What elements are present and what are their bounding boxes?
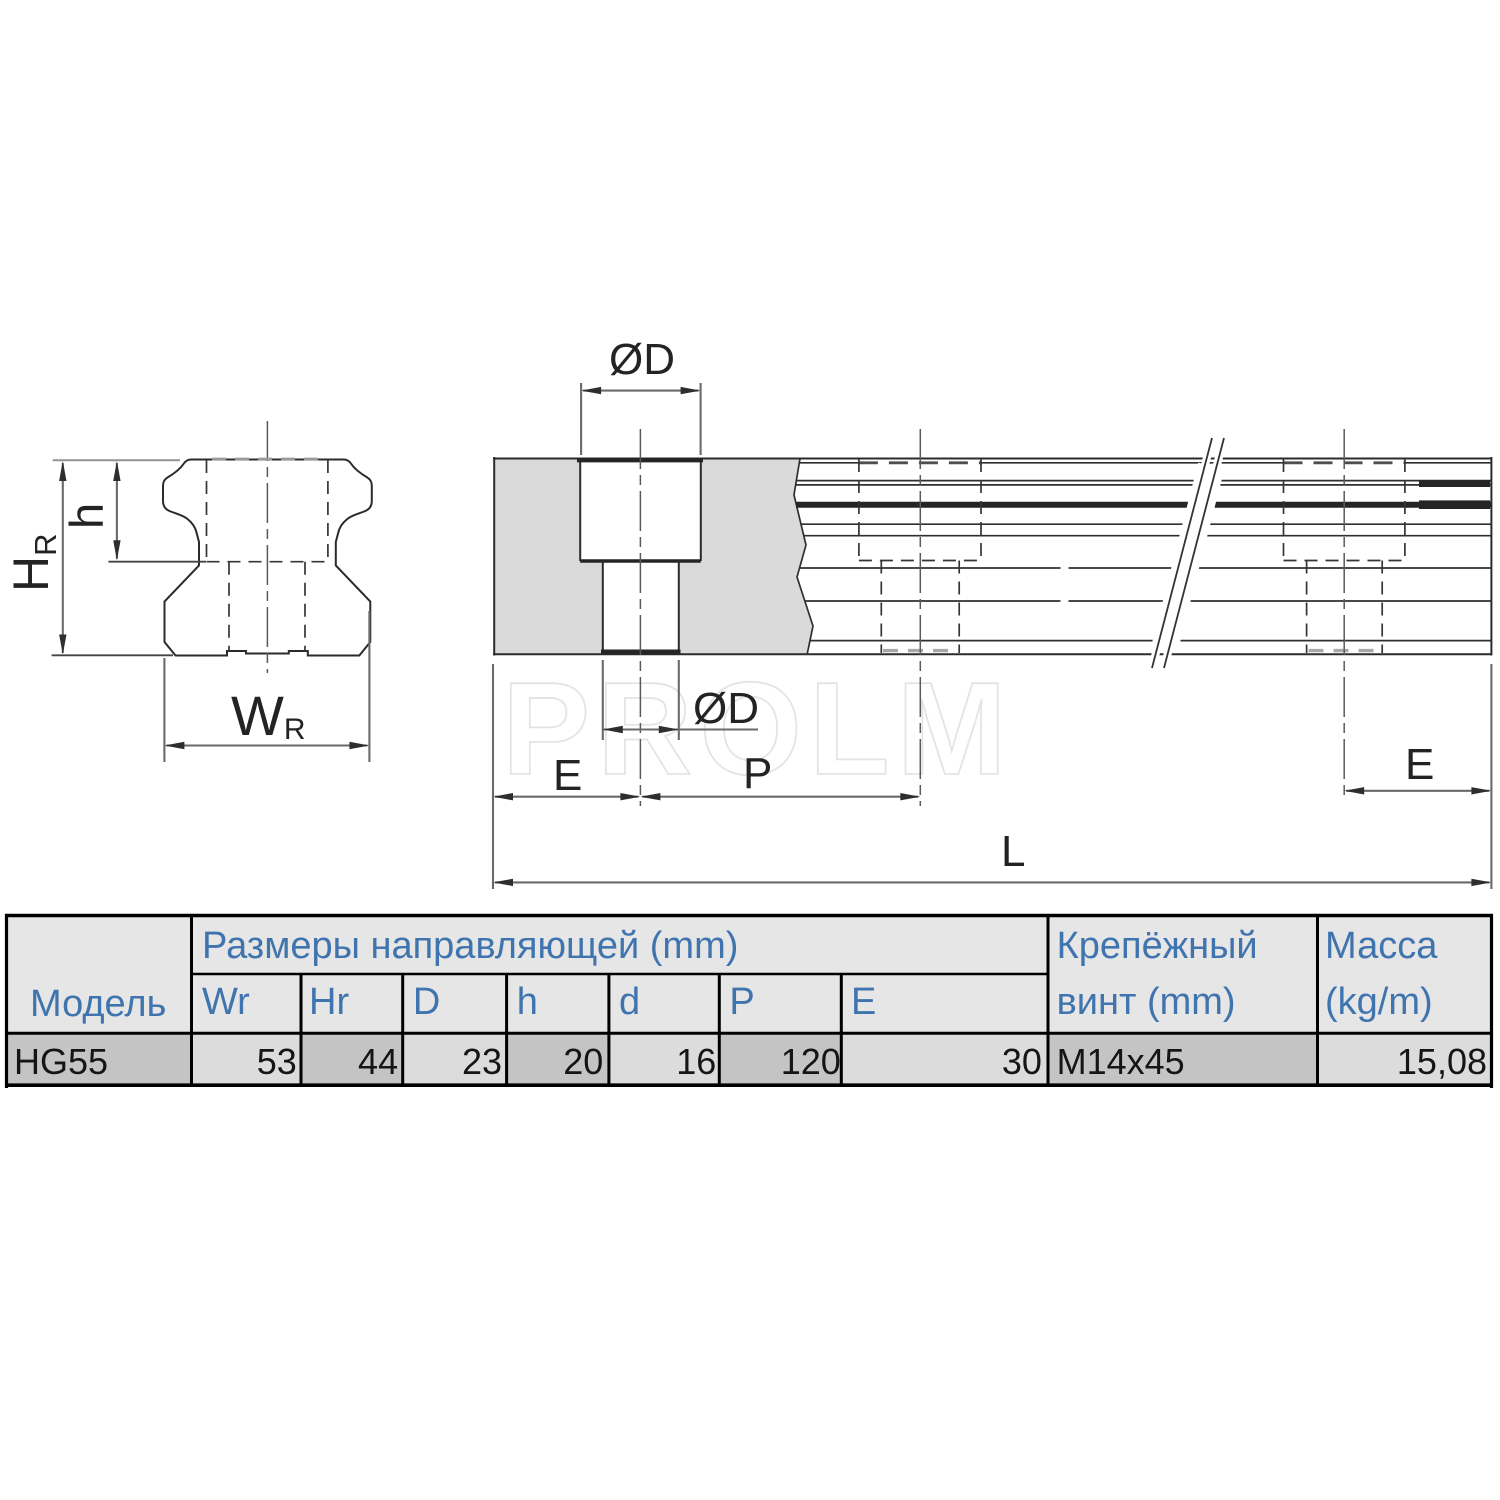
svg-text:E: E (851, 981, 876, 1023)
svg-text:16: 16 (676, 1041, 716, 1082)
svg-text:E: E (1405, 740, 1434, 789)
svg-text:53: 53 (257, 1041, 297, 1082)
svg-text:h: h (517, 981, 538, 1023)
svg-text:Hr: Hr (309, 981, 349, 1023)
svg-text:Wr: Wr (202, 981, 250, 1023)
svg-text:ØD: ØD (609, 335, 675, 384)
svg-text:HG55: HG55 (14, 1041, 108, 1082)
svg-text:44: 44 (358, 1041, 398, 1082)
svg-text:(kg/m): (kg/m) (1325, 981, 1433, 1023)
svg-text:Размеры направляющей (mm): Размеры направляющей (mm) (202, 925, 738, 967)
svg-text:ØD: ØD (693, 684, 759, 733)
svg-text:120: 120 (781, 1041, 841, 1082)
svg-text:L: L (1001, 827, 1025, 876)
svg-text:d: d (619, 981, 640, 1023)
svg-text:20: 20 (563, 1041, 603, 1082)
svg-text:Крепёжный: Крепёжный (1057, 925, 1258, 967)
svg-text:Масса: Масса (1325, 925, 1438, 967)
svg-text:30: 30 (1002, 1041, 1042, 1082)
svg-text:P: P (743, 749, 772, 798)
svg-text:E: E (553, 751, 582, 800)
svg-text:M14x45: M14x45 (1057, 1041, 1185, 1082)
svg-text:Модель: Модель (30, 983, 166, 1025)
svg-text:D: D (413, 981, 440, 1023)
svg-text:15,08: 15,08 (1397, 1041, 1487, 1082)
svg-text:h: h (60, 503, 113, 529)
svg-text:23: 23 (462, 1041, 502, 1082)
svg-text:винт (mm): винт (mm) (1057, 981, 1236, 1023)
svg-text:P: P (729, 981, 754, 1023)
